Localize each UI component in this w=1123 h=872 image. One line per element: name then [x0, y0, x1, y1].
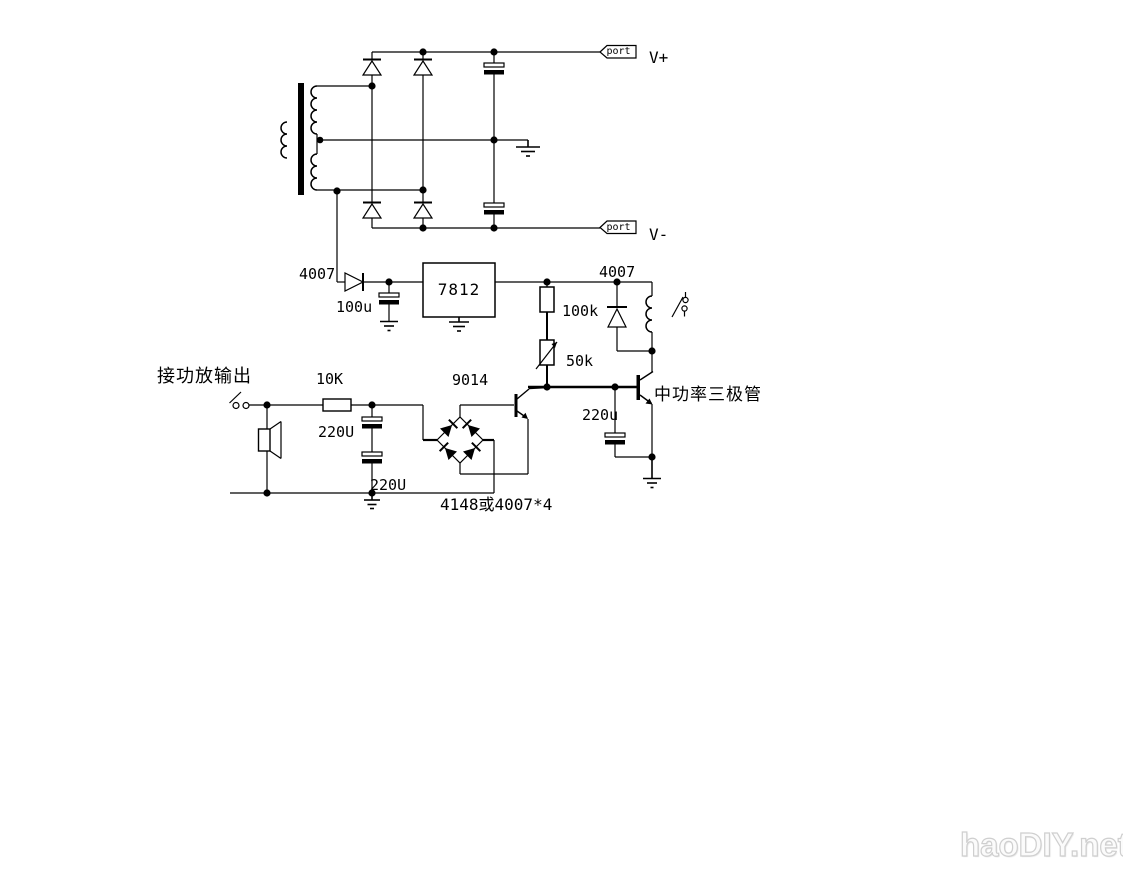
center-tap-ground [516, 140, 540, 156]
freewheel-diode-label: 4007 [599, 264, 635, 281]
input-note-label: 接功放输出 [157, 367, 252, 387]
junction-dot [490, 48, 497, 55]
speaker [259, 405, 282, 493]
freewheel-diode-4007 [607, 282, 652, 351]
rectifier-diode-d4 [414, 203, 432, 229]
input-connector [230, 392, 250, 409]
junction-dot [648, 347, 655, 354]
cap-100u-label: 100u [336, 299, 372, 316]
series-diode-4007 [337, 273, 423, 291]
junction-dot [490, 224, 497, 231]
junction-dot [419, 224, 426, 231]
resistor-10k-label: 10K [316, 371, 343, 388]
cap-100u [379, 282, 399, 331]
rail-ground-symbol [364, 493, 380, 509]
port-label-vminus: port [601, 221, 636, 234]
emitter-arrow [522, 413, 529, 419]
emitter-ground [643, 457, 661, 488]
rectifier-diode-d3 [363, 203, 381, 229]
circuit-schematic [0, 0, 1123, 872]
relay-coil [646, 282, 652, 372]
power-transistor [637, 372, 654, 458]
transformer-core [298, 83, 304, 195]
port-label-vplus: port [601, 45, 636, 58]
v-minus-filter-cap [484, 140, 504, 228]
transistor-9014-label: 9014 [452, 372, 488, 389]
vminus-label: V- [649, 226, 668, 244]
secondary-winding-upper [311, 86, 317, 134]
primary-winding [281, 122, 287, 158]
junction-dot [385, 278, 392, 285]
bridge-note-label: 4148或4007*4 [440, 496, 552, 514]
ground-symbol [380, 322, 398, 331]
watermark-logo: haoDIY.net [960, 826, 1123, 864]
transistor-base-bar [637, 375, 641, 400]
cap-220u-delay-label: 220u [582, 407, 618, 424]
transistor-base-bar [515, 394, 518, 417]
resistor-100k [540, 287, 554, 312]
regulator-ground [449, 317, 469, 331]
pot-50k-label: 50k [566, 353, 593, 370]
junction-dot [490, 136, 497, 143]
vplus-label: V+ [649, 49, 668, 67]
junction-dot [263, 489, 270, 496]
resistor-100k-label: 100k [562, 303, 598, 320]
secondary-winding-lower [311, 154, 317, 190]
schematic-page: port V+ port V- 4007 100u 7812 100k 4007… [0, 0, 1123, 872]
v-plus-filter-cap [484, 52, 504, 140]
junction-dot [317, 137, 324, 144]
regulator-label: 7812 [423, 263, 495, 317]
resistor-10k [323, 399, 351, 411]
power-transistor-note-label: 中功率三极管 [654, 386, 762, 405]
junction-dot [419, 48, 426, 55]
series-diode-label: 4007 [299, 266, 335, 283]
junction-dot [419, 186, 426, 193]
rectifier-diode-d1 [363, 52, 381, 203]
cap-220u-lower-label: 220U [370, 477, 406, 494]
relay-contact [672, 292, 688, 317]
rectifier-diode-d2 [414, 52, 432, 203]
detector-bridge [423, 405, 514, 493]
cap-220u-upper-label: 220U [318, 424, 354, 441]
transistor-9014 [494, 388, 547, 475]
